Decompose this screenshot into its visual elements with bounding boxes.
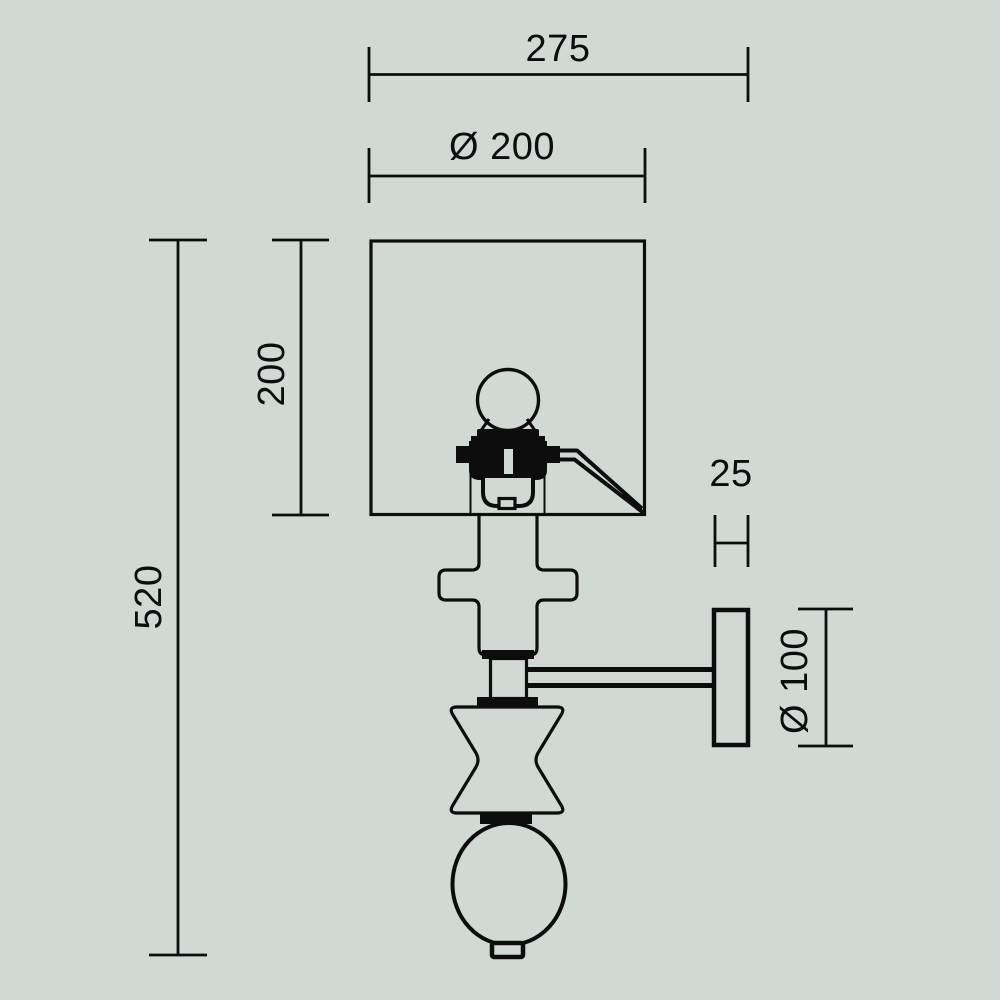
wall-arm-upper-line — [528, 667, 712, 672]
dim-plate-diameter: Ø 100 — [774, 609, 853, 746]
wall-mount-plate — [714, 610, 748, 745]
socket-cup-tab — [499, 499, 515, 509]
socket-wing-left — [456, 446, 469, 463]
dim-plate-diameter-label: Ø 100 — [774, 628, 816, 734]
dim-shade-diameter: Ø 200 — [369, 126, 645, 203]
sphere-element — [453, 823, 566, 945]
stem-cross-element — [439, 516, 577, 655]
dim-plate-thickness-lines — [715, 515, 748, 567]
wall-arm-lower-line — [528, 683, 712, 688]
dim-shade-diameter-label: Ø 200 — [449, 126, 555, 168]
drawing-canvas: 275 Ø 200 200 520 25 Ø 100 — [0, 0, 1000, 1000]
bottom-finial — [492, 943, 523, 957]
dim-overall-height-label: 520 — [128, 565, 170, 630]
bowtie-element — [451, 707, 563, 813]
socket-slot — [504, 449, 513, 475]
dim-overall-depth-label: 275 — [526, 28, 591, 70]
socket-support-arm — [546, 451, 645, 514]
dim-plate-thickness-label: 25 — [709, 453, 752, 495]
lamp-drawing — [371, 241, 748, 957]
wall-lamp-technical-drawing: 275 Ø 200 200 520 25 Ø 100 — [0, 0, 1000, 1000]
dim-overall-depth: 275 — [369, 28, 748, 102]
dim-shade-height-label: 200 — [251, 342, 293, 407]
dim-overall-height: 520 — [128, 240, 207, 955]
neck-tube — [491, 659, 527, 699]
dim-plate-thickness: 25 — [709, 453, 752, 567]
dim-shade-height: 200 — [251, 240, 329, 515]
